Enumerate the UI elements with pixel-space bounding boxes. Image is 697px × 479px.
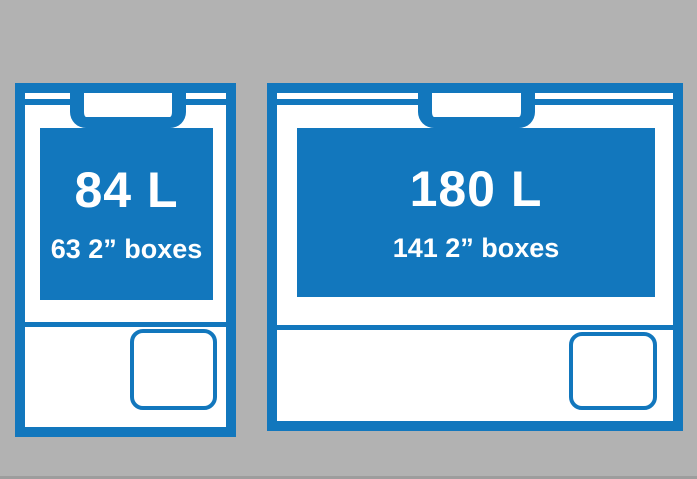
boxes-count-label: 141 2” boxes [393,235,560,262]
capacity-label: 84 L [74,165,178,215]
lid-handle-icon [70,93,186,128]
capacity-panel: 84 L 63 2” boxes [40,128,213,300]
boxes-count-label: 63 2” boxes [51,236,203,263]
capacity-panel: 180 L 141 2” boxes [297,128,655,297]
cooler-large-outline: 180 L 141 2” boxes [267,83,683,431]
compressor-square [130,329,217,410]
compressor-square [569,332,657,410]
cooler-small-outline: 84 L 63 2” boxes [15,83,236,437]
capacity-comparison-infographic: 84 L 63 2” boxes 180 L 141 2” boxes [0,0,697,479]
capacity-label: 180 L [410,164,543,214]
body-divider-line [277,325,673,330]
body-divider-line [25,322,226,327]
lid-handle-icon [418,93,535,128]
